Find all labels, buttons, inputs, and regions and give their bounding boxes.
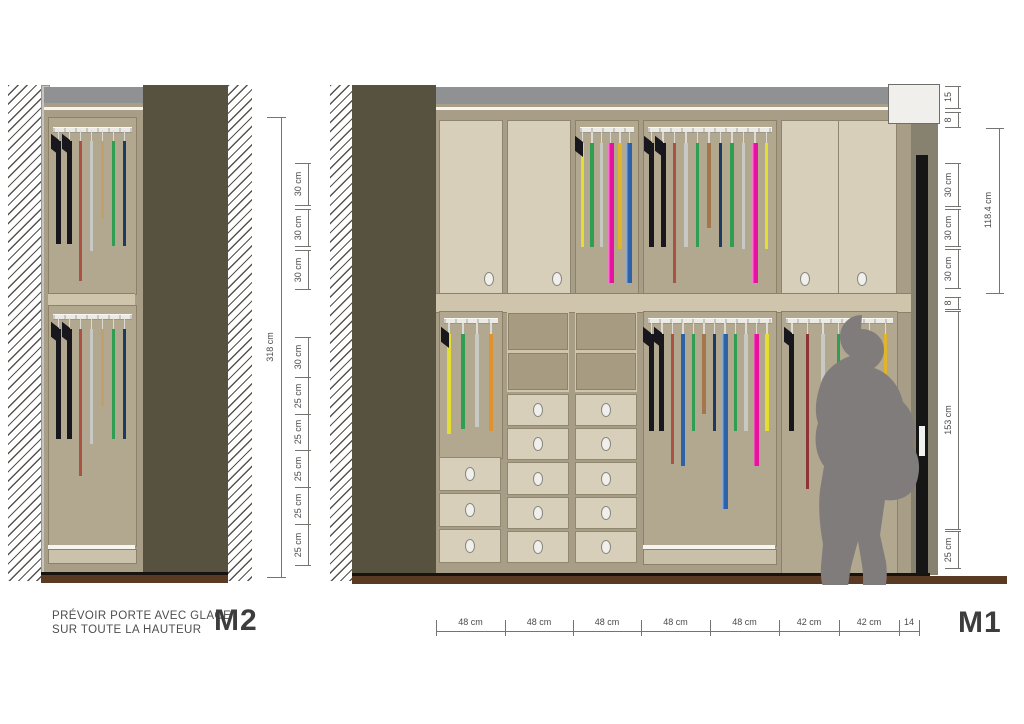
drawer-front bbox=[575, 531, 637, 563]
dim-label: 42 cm bbox=[857, 617, 882, 627]
hanger-hook bbox=[766, 323, 768, 334]
hanger-magenta bbox=[751, 323, 762, 466]
m1-drawerstack-c1 bbox=[439, 457, 501, 563]
drawer-knob bbox=[465, 467, 475, 481]
hanger-hook bbox=[674, 132, 676, 143]
dim-tick bbox=[295, 450, 311, 451]
dim-label: 25 cm bbox=[293, 532, 303, 557]
hanger-hook bbox=[743, 132, 745, 143]
m1-outer-dim-tick-bottom bbox=[986, 293, 1004, 294]
hanger-yellow bbox=[578, 132, 587, 247]
dim-tick bbox=[945, 127, 961, 128]
dim-tick bbox=[295, 487, 311, 488]
dim-label: 25 cm bbox=[293, 493, 303, 518]
dim-label: 42 cm bbox=[797, 617, 822, 627]
dim-segment-line bbox=[958, 163, 959, 206]
hanger-hook bbox=[697, 132, 699, 143]
garment bbox=[696, 143, 700, 247]
hanger-hook bbox=[113, 130, 115, 141]
garment bbox=[56, 141, 61, 244]
hanger-navy bbox=[119, 130, 130, 246]
dim-segment-line bbox=[308, 450, 309, 487]
hanger-hook bbox=[693, 323, 695, 334]
dim-label: 48 cm bbox=[732, 617, 757, 627]
hanger-hook bbox=[490, 323, 492, 334]
garment bbox=[753, 334, 759, 466]
garment bbox=[101, 141, 105, 219]
m1-drawerstack-c2 bbox=[507, 394, 569, 563]
dim-segment-line bbox=[958, 86, 959, 108]
m2-total-dim-tick-top bbox=[267, 117, 286, 118]
hanger-magenta bbox=[749, 132, 760, 283]
m1-lower-hangers-c1 bbox=[442, 323, 498, 455]
hanger-hook bbox=[124, 130, 126, 141]
dim-tick bbox=[710, 620, 711, 636]
hanger-hook bbox=[708, 132, 710, 143]
garment bbox=[673, 143, 677, 283]
hanger-rust bbox=[75, 130, 86, 281]
hanger-navy bbox=[709, 323, 720, 431]
dim-segment-line bbox=[308, 524, 309, 565]
m2-total-dim-line bbox=[281, 117, 282, 578]
hanger-green bbox=[730, 323, 741, 431]
hanger-yellow bbox=[762, 323, 773, 431]
hanger-lightgray bbox=[741, 323, 752, 431]
dim-baseline bbox=[436, 631, 919, 632]
dim-label: 25 cm bbox=[943, 537, 953, 562]
dim-label: 30 cm bbox=[943, 215, 953, 240]
hanger-hook bbox=[724, 323, 726, 334]
garment bbox=[752, 143, 758, 283]
dim-label: 48 cm bbox=[527, 617, 552, 627]
hanger-hook bbox=[610, 132, 612, 143]
hanger-hook bbox=[80, 130, 82, 141]
drawer-knob bbox=[533, 540, 543, 554]
open-shelf bbox=[576, 353, 636, 390]
garment bbox=[765, 334, 769, 431]
dim-tick bbox=[295, 337, 311, 338]
hanger-lightgray bbox=[680, 132, 691, 247]
garment bbox=[56, 329, 61, 439]
garment bbox=[681, 334, 685, 466]
m1-label: M1 bbox=[958, 606, 1002, 640]
m2-total-dim-tick-bottom bbox=[267, 577, 286, 578]
dim-tick bbox=[945, 108, 961, 109]
hanger-hook bbox=[672, 323, 674, 334]
garment bbox=[112, 141, 116, 246]
m1-cornice-line bbox=[436, 107, 888, 110]
hanger-lightgray bbox=[738, 132, 749, 249]
hanger-black bbox=[657, 132, 668, 247]
dim-tick bbox=[945, 297, 961, 298]
dim-tick bbox=[295, 414, 311, 415]
drawer-knob bbox=[533, 437, 543, 451]
hanger-hook bbox=[91, 130, 93, 141]
hanger-blue bbox=[720, 323, 731, 509]
m1-upper-door-3-knob bbox=[800, 272, 810, 286]
hanger-hook bbox=[629, 132, 631, 143]
garment bbox=[713, 334, 717, 431]
garment bbox=[692, 334, 696, 431]
garment bbox=[112, 329, 116, 439]
drawer-knob bbox=[601, 472, 611, 486]
dim-tick bbox=[295, 565, 311, 566]
hanger-hook bbox=[745, 323, 747, 334]
hanger-orange bbox=[484, 323, 498, 431]
garment bbox=[765, 143, 769, 249]
hanger-navy bbox=[715, 132, 726, 247]
dim-label: 25 cm bbox=[293, 456, 303, 481]
dim-tick bbox=[295, 524, 311, 525]
m2-floor bbox=[41, 575, 228, 583]
hanger-hook bbox=[682, 323, 684, 334]
dim-tick bbox=[505, 620, 506, 636]
hanger-rust bbox=[667, 323, 678, 464]
dim-label: 48 cm bbox=[595, 617, 620, 627]
m1-lower-hangers-c45 bbox=[646, 323, 772, 543]
drawer-front bbox=[575, 428, 637, 460]
dim-label: 30 cm bbox=[943, 256, 953, 281]
hanger-green bbox=[688, 323, 699, 431]
m1-drawerstack-c3 bbox=[575, 394, 637, 563]
dim-tick bbox=[779, 620, 780, 636]
hanger-black bbox=[657, 323, 668, 431]
m2-wall-hatch-left bbox=[8, 85, 41, 581]
m1-wall-panel-left bbox=[352, 85, 436, 575]
dim-tick bbox=[295, 163, 311, 164]
m1-upper-door-1 bbox=[439, 120, 503, 295]
dim-tick bbox=[295, 487, 311, 488]
dim-label: 8 bbox=[943, 117, 953, 122]
garment bbox=[90, 329, 94, 444]
dim-tick bbox=[295, 209, 311, 210]
open-shelf bbox=[508, 353, 568, 390]
drawer-knob bbox=[465, 503, 475, 517]
drawer-knob bbox=[601, 506, 611, 520]
m1-upper-door-4-knob bbox=[857, 272, 867, 286]
hanger-navy bbox=[119, 318, 130, 439]
m2-top-band bbox=[44, 87, 143, 103]
dim-tick bbox=[919, 620, 920, 636]
dim-tick bbox=[945, 529, 961, 530]
dim-tick bbox=[945, 209, 961, 210]
hanger-brown bbox=[703, 132, 714, 228]
hanger-blue bbox=[678, 323, 689, 466]
m1-upper-door-2-knob bbox=[552, 272, 562, 286]
dim-segment-line bbox=[308, 414, 309, 450]
m1-cubbies-c2 bbox=[508, 313, 568, 390]
m1-cornice bbox=[436, 104, 913, 117]
m1-wall-hatch-left bbox=[330, 85, 353, 581]
hanger-rust bbox=[669, 132, 680, 283]
dim-segment-line bbox=[308, 250, 309, 289]
dim-segment-line bbox=[958, 249, 959, 288]
garment bbox=[618, 143, 622, 249]
dim-segment-line bbox=[308, 209, 309, 246]
hanger-tan bbox=[97, 318, 108, 407]
dim-tick bbox=[295, 414, 311, 415]
drawer-front bbox=[575, 394, 637, 426]
hanger-hook bbox=[720, 132, 722, 143]
hanger-hook bbox=[102, 318, 104, 329]
hanger-rust bbox=[75, 318, 86, 476]
garment bbox=[649, 334, 654, 431]
dim-segment-line bbox=[308, 163, 309, 205]
m2-note: PRÉVOIR PORTE AVEC GLACE SUR TOUTE LA HA… bbox=[52, 609, 231, 637]
garment bbox=[734, 334, 738, 431]
dim-tick bbox=[945, 206, 961, 207]
hanger-hook bbox=[102, 130, 104, 141]
garment bbox=[626, 143, 632, 283]
dim-label: 30 cm bbox=[293, 215, 303, 240]
m2-upper-hangers bbox=[53, 130, 130, 288]
dim-label: 153 cm bbox=[943, 405, 953, 435]
m1-top-band bbox=[436, 87, 888, 104]
dim-label: 30 cm bbox=[293, 257, 303, 282]
hanger-hook bbox=[703, 323, 705, 334]
m2-wall-panel bbox=[143, 85, 228, 575]
hanger-yellow bbox=[442, 323, 456, 434]
m1-ceiling-box bbox=[888, 84, 940, 124]
m2-base-strip bbox=[48, 549, 137, 564]
hanger-hook bbox=[754, 132, 756, 143]
hanger-green bbox=[726, 132, 737, 247]
m1-c45-base-strip bbox=[643, 549, 777, 565]
garment bbox=[447, 334, 451, 434]
drawer-front bbox=[439, 493, 501, 527]
m2-note-line2: SUR TOUTE LA HAUTEUR bbox=[52, 623, 231, 637]
hanger-hook bbox=[735, 323, 737, 334]
drawer-knob bbox=[601, 437, 611, 451]
garment bbox=[744, 334, 748, 431]
drawer-knob bbox=[533, 403, 543, 417]
open-shelf bbox=[576, 313, 636, 350]
m2-note-line1: PRÉVOIR PORTE AVEC GLACE bbox=[52, 609, 231, 623]
garment bbox=[730, 143, 734, 247]
dim-tick bbox=[295, 205, 311, 206]
m1-upper-hangers-c45 bbox=[646, 132, 772, 290]
dim-segment-line bbox=[308, 487, 309, 524]
garment bbox=[719, 143, 723, 247]
hanger-hook bbox=[685, 132, 687, 143]
garment bbox=[67, 141, 72, 244]
dim-label: 30 cm bbox=[293, 172, 303, 197]
person-silhouette bbox=[800, 305, 920, 585]
open-shelf bbox=[508, 313, 568, 350]
dim-tick bbox=[945, 311, 961, 312]
dim-tick bbox=[295, 246, 311, 247]
garment bbox=[608, 143, 614, 283]
drawer-knob bbox=[465, 539, 475, 553]
dim-tick bbox=[945, 86, 961, 87]
hanger-green bbox=[692, 132, 703, 247]
dim-label: 25 cm bbox=[293, 420, 303, 445]
drawer-knob bbox=[533, 506, 543, 520]
m2-total-dim-label: 318 cm bbox=[265, 332, 275, 362]
dim-tick bbox=[899, 620, 900, 636]
garment bbox=[722, 334, 728, 509]
m2-cornice bbox=[44, 103, 143, 117]
hanger-hook bbox=[476, 323, 478, 334]
m2-lower-hangers bbox=[53, 318, 130, 544]
hanger-hook bbox=[619, 132, 621, 143]
m1-cubbies-c3 bbox=[576, 313, 636, 390]
m1-outer-dim-label: 118.4 cm bbox=[983, 192, 993, 228]
dim-tick bbox=[945, 568, 961, 569]
dim-tick bbox=[945, 309, 961, 310]
dim-tick bbox=[573, 620, 574, 636]
garment bbox=[67, 329, 72, 439]
dim-tick bbox=[945, 163, 961, 164]
hanger-lightgray bbox=[86, 130, 97, 251]
elevation-drawing: 318 cm PRÉVOIR PORTE AVEC GLACE SUR TOUT… bbox=[0, 0, 1024, 724]
drawer-front bbox=[507, 462, 569, 494]
garment bbox=[123, 329, 127, 439]
drawer-front bbox=[439, 457, 501, 491]
hanger-green bbox=[456, 323, 470, 429]
hanger-hook bbox=[601, 132, 603, 143]
garment bbox=[707, 143, 711, 228]
drawer-front bbox=[507, 394, 569, 426]
garment bbox=[671, 334, 675, 464]
m1-upper-door-4 bbox=[838, 120, 897, 295]
dim-tick bbox=[945, 531, 961, 532]
dim-tick bbox=[945, 112, 961, 113]
drawer-front bbox=[507, 497, 569, 529]
m1-upper-door-3 bbox=[781, 120, 840, 295]
hanger-hook bbox=[113, 318, 115, 329]
hanger-green bbox=[108, 318, 119, 439]
drawer-front bbox=[575, 497, 637, 529]
drawer-knob bbox=[601, 540, 611, 554]
dim-tick bbox=[295, 250, 311, 251]
dim-tick bbox=[295, 524, 311, 525]
m1-upper-hangers-c3 bbox=[578, 132, 634, 290]
dim-tick bbox=[295, 289, 311, 290]
dim-label: 48 cm bbox=[458, 617, 483, 627]
hanger-hook bbox=[91, 318, 93, 329]
drawer-knob bbox=[601, 403, 611, 417]
dim-tick bbox=[839, 620, 840, 636]
garment bbox=[475, 334, 479, 427]
hanger-hook bbox=[766, 132, 768, 143]
m2-wall-hatch-right bbox=[228, 85, 252, 581]
garment bbox=[123, 141, 127, 246]
dim-tick bbox=[295, 377, 311, 378]
drawer-front bbox=[507, 428, 569, 460]
drawer-front bbox=[507, 531, 569, 563]
dim-tick bbox=[945, 249, 961, 250]
dim-segment-line bbox=[958, 112, 959, 127]
dim-segment-line bbox=[958, 209, 959, 246]
dim-label: 25 cm bbox=[293, 383, 303, 408]
hanger-tan bbox=[97, 130, 108, 219]
m1-upper-door-2 bbox=[507, 120, 571, 295]
dim-tick bbox=[295, 377, 311, 378]
dim-tick bbox=[295, 450, 311, 451]
garment bbox=[661, 143, 666, 247]
hanger-green bbox=[108, 130, 119, 246]
garment bbox=[702, 334, 706, 414]
hanger-hook bbox=[124, 318, 126, 329]
garment bbox=[79, 141, 83, 281]
hanger-black bbox=[784, 323, 800, 431]
garment bbox=[101, 329, 105, 407]
dim-label: 8 bbox=[943, 300, 953, 305]
hanger-hook bbox=[80, 318, 82, 329]
dim-tick bbox=[945, 246, 961, 247]
garment bbox=[461, 334, 465, 429]
hanger-lightgray bbox=[86, 318, 97, 444]
dim-label: 30 cm bbox=[293, 345, 303, 370]
dim-tick bbox=[436, 620, 437, 636]
m2-cornice-line bbox=[44, 107, 143, 110]
garment bbox=[649, 143, 654, 247]
hanger-hook bbox=[591, 132, 593, 143]
dim-segment-line bbox=[958, 297, 959, 309]
garment bbox=[742, 143, 746, 249]
dim-label: 15 bbox=[943, 92, 953, 102]
hanger-yellow bbox=[761, 132, 772, 249]
m1-outer-dim-tick-top bbox=[986, 128, 1004, 129]
drawer-knob bbox=[533, 472, 543, 486]
m1-upper-door-1-knob bbox=[484, 272, 494, 286]
hanger-magenta bbox=[606, 132, 615, 283]
hanger-hook bbox=[714, 323, 716, 334]
m1-outer-dim-line bbox=[999, 128, 1000, 293]
dim-segment-line bbox=[958, 311, 959, 529]
dim-segment-line bbox=[308, 377, 309, 414]
drawer-front bbox=[575, 462, 637, 494]
dim-tick bbox=[945, 288, 961, 289]
dim-label: 30 cm bbox=[943, 172, 953, 197]
garment bbox=[684, 143, 688, 247]
garment bbox=[600, 143, 604, 247]
hanger-blue bbox=[625, 132, 634, 283]
hanger-hook bbox=[756, 323, 758, 334]
hanger-green bbox=[587, 132, 596, 247]
hanger-amber bbox=[615, 132, 624, 249]
hanger-black bbox=[64, 318, 75, 439]
garment bbox=[590, 143, 594, 247]
hanger-hook bbox=[462, 323, 464, 334]
hanger-black bbox=[64, 130, 75, 244]
hanger-lightgray bbox=[470, 323, 484, 427]
dim-tick bbox=[641, 620, 642, 636]
dim-label: 14 bbox=[904, 617, 914, 627]
hanger-hook bbox=[731, 132, 733, 143]
garment bbox=[90, 141, 94, 251]
dim-segment-line bbox=[958, 531, 959, 568]
drawer-front bbox=[439, 529, 501, 563]
garment bbox=[79, 329, 83, 476]
dim-label: 48 cm bbox=[663, 617, 688, 627]
garment bbox=[581, 143, 585, 247]
garment bbox=[489, 334, 493, 431]
dim-segment-line bbox=[308, 337, 309, 377]
m2-label: M2 bbox=[214, 604, 258, 638]
hanger-lightgray bbox=[597, 132, 606, 247]
hanger-brown bbox=[699, 323, 710, 414]
